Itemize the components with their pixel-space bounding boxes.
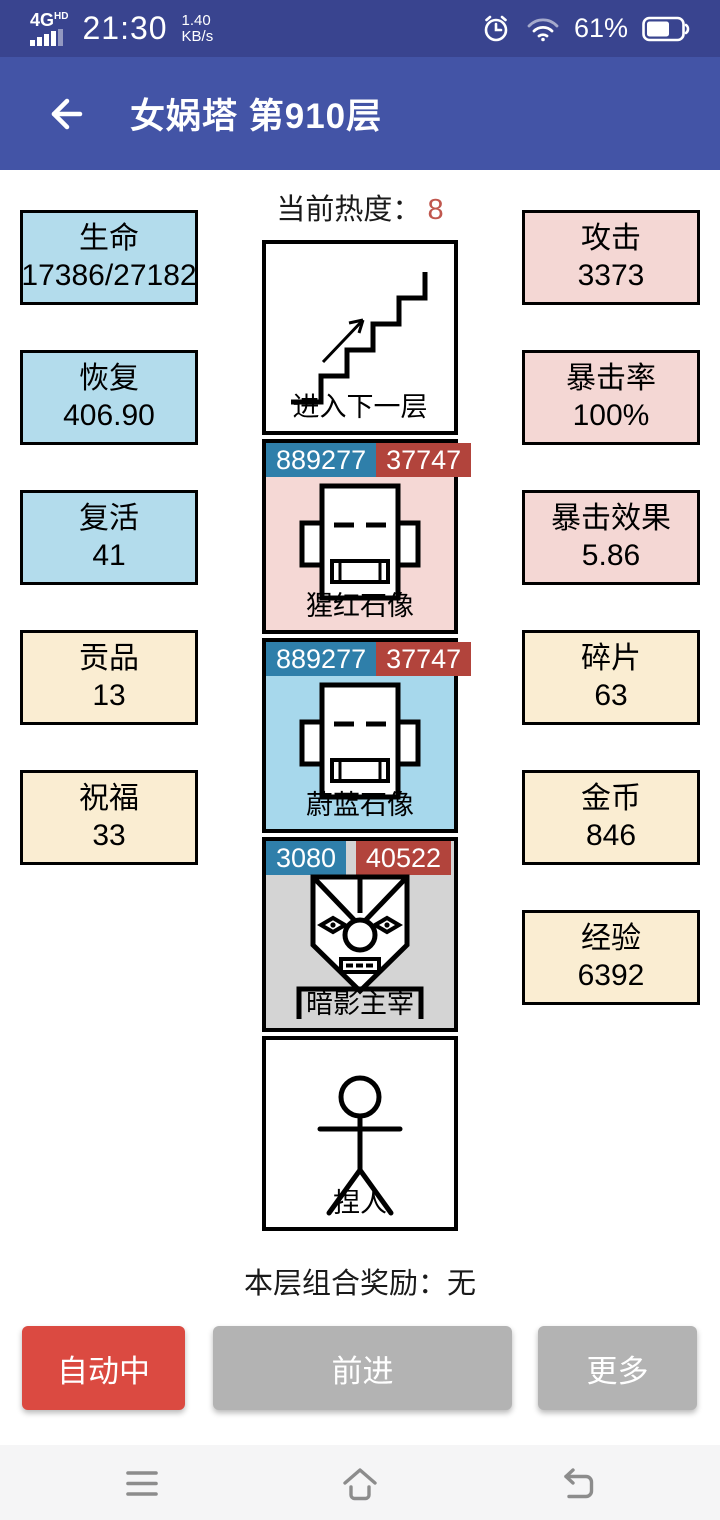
monster-badges: 3080 40522 xyxy=(266,841,451,875)
left-stats-column: 生命 17386/27182 恢复 406.90 复活 41 贡品 13 祝福 … xyxy=(20,210,198,865)
monster-name: 猩红石像 xyxy=(266,584,454,623)
monster-card-azure-statue[interactable]: 889277 37747 蔚蓝石像 xyxy=(262,638,458,833)
stat-value: 13 xyxy=(92,678,125,715)
monster-badges: 889277 37747 xyxy=(266,443,451,477)
nav-menu-icon[interactable] xyxy=(120,1462,164,1506)
stat-label: 生命 xyxy=(79,221,139,258)
battery-percent-label: 61% xyxy=(574,13,628,44)
stat-box-health: 生命 17386/27182 xyxy=(20,210,198,305)
battery-icon xyxy=(642,16,690,42)
stat-box-recovery: 恢复 406.90 xyxy=(20,350,198,445)
stat-value: 63 xyxy=(594,678,627,715)
stat-label: 恢复 xyxy=(79,361,139,398)
next-floor-card[interactable]: 进入下一层 xyxy=(262,240,458,435)
combo-reward-line: 本层组合奖励：无 xyxy=(0,1260,720,1302)
stat-label: 攻击 xyxy=(581,221,641,258)
stat-box-exp: 经验 6392 xyxy=(522,910,700,1005)
system-nav-bar xyxy=(0,1445,720,1520)
network-speed: 1.40 KB/s xyxy=(182,13,214,45)
attack-badge: 37747 xyxy=(376,443,471,477)
monster-name: 蔚蓝石像 xyxy=(266,783,454,822)
stat-value: 406.90 xyxy=(63,398,155,435)
nav-home-icon[interactable] xyxy=(338,1462,382,1506)
hp-badge: 889277 xyxy=(266,443,376,477)
monster-card-shadow-overlord[interactable]: 3080 40522 xyxy=(262,837,458,1032)
app-bar: 女娲塔 第910层 xyxy=(0,57,720,170)
attack-badge: 40522 xyxy=(356,841,451,875)
heat-value: 8 xyxy=(421,194,443,226)
forward-button[interactable]: 前进 xyxy=(213,1326,512,1410)
player-label: 捏人 xyxy=(266,1181,454,1220)
stat-box-gold: 金币 846 xyxy=(522,770,700,865)
stat-box-crit-damage: 暴击效果 5.86 xyxy=(522,490,700,585)
more-button[interactable]: 更多 xyxy=(538,1326,697,1410)
clock-time: 21:30 xyxy=(82,10,167,47)
alarm-clock-icon xyxy=(480,13,512,45)
stat-box-revive: 复活 41 xyxy=(20,490,198,585)
stat-value: 33 xyxy=(92,818,125,855)
stat-label: 碎片 xyxy=(581,641,641,678)
next-floor-label: 进入下一层 xyxy=(266,385,454,424)
monster-badges: 889277 37747 xyxy=(266,642,451,676)
wifi-icon xyxy=(526,16,560,42)
monster-name: 暗影主宰 xyxy=(266,982,454,1021)
stat-label: 祝福 xyxy=(79,781,139,818)
hp-badge: 3080 xyxy=(266,841,346,875)
stat-box-blessing: 祝福 33 xyxy=(20,770,198,865)
stat-label: 暴击效果 xyxy=(551,501,671,538)
phone-screen: 4GHD 21:30 1.40 KB/s xyxy=(0,0,720,1520)
back-arrow-icon[interactable] xyxy=(42,92,86,136)
combo-label: 本层组合奖励： xyxy=(244,1268,447,1300)
stat-label: 金币 xyxy=(581,781,641,818)
stat-value: 17386/27182 xyxy=(21,258,196,295)
stat-value: 100% xyxy=(573,398,650,435)
tower-column: 进入下一层 889277 37747 xyxy=(262,240,458,1231)
heat-label: 当前热度： xyxy=(276,194,421,226)
auto-battle-button[interactable]: 自动中 xyxy=(22,1326,185,1410)
main-content: 当前热度：8 生命 17386/27182 恢复 406.90 复活 41 贡品… xyxy=(0,170,720,1520)
player-card[interactable]: 捏人 xyxy=(262,1036,458,1231)
network-indicator: 4GHD xyxy=(30,11,68,46)
nav-return-icon[interactable] xyxy=(556,1462,600,1506)
monster-card-crimson-statue[interactable]: 889277 37747 猩红石像 xyxy=(262,439,458,634)
status-bar: 4GHD 21:30 1.40 KB/s xyxy=(0,0,720,57)
network-type-label: 4GHD xyxy=(30,11,68,29)
attack-badge: 37747 xyxy=(376,642,471,676)
stat-box-tribute: 贡品 13 xyxy=(20,630,198,725)
signal-bars-icon xyxy=(30,29,66,46)
page-title: 女娲塔 第910层 xyxy=(130,88,382,139)
hp-badge: 889277 xyxy=(266,642,376,676)
stat-value: 41 xyxy=(92,538,125,575)
stat-value: 846 xyxy=(586,818,636,855)
stat-label: 经验 xyxy=(581,921,641,958)
right-stats-column: 攻击 3373 暴击率 100% 暴击效果 5.86 碎片 63 金币 846 … xyxy=(522,210,700,1005)
stat-value: 3373 xyxy=(578,258,645,295)
stat-box-attack: 攻击 3373 xyxy=(522,210,700,305)
stat-label: 复活 xyxy=(79,501,139,538)
stat-box-shards: 碎片 63 xyxy=(522,630,700,725)
stat-label: 贡品 xyxy=(79,641,139,678)
stat-value: 6392 xyxy=(578,958,645,995)
stat-box-crit-rate: 暴击率 100% xyxy=(522,350,700,445)
stat-label: 暴击率 xyxy=(566,361,656,398)
stat-value: 5.86 xyxy=(582,538,640,575)
combo-value: 无 xyxy=(447,1268,476,1300)
